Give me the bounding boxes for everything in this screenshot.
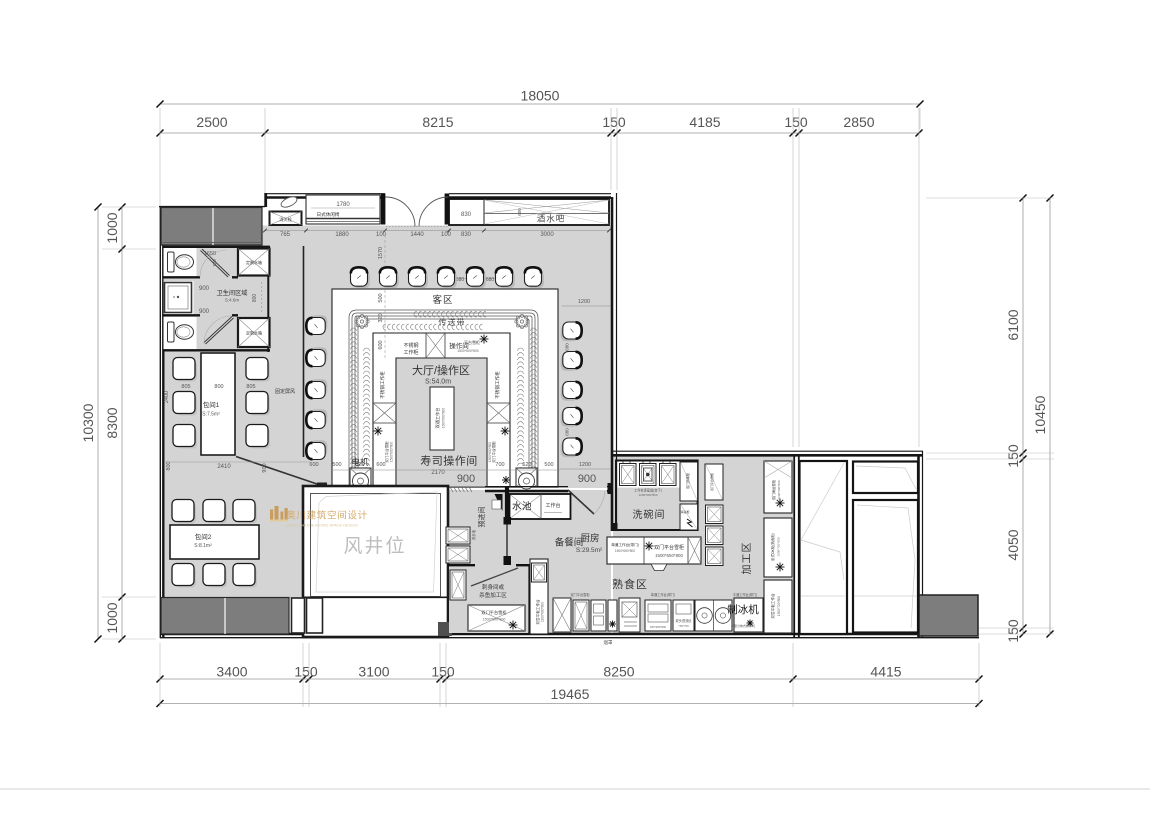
svg-text:8215: 8215 (422, 114, 453, 130)
svg-text:包间2: 包间2 (195, 532, 212, 541)
svg-text:2400: 2400 (164, 391, 170, 403)
svg-text:1500*600*800: 1500*600*800 (457, 349, 479, 353)
svg-text:S:7.5m²: S:7.5m² (202, 412, 220, 418)
svg-text:500: 500 (378, 293, 384, 302)
svg-text:酒水吧: 酒水吧 (537, 214, 566, 224)
svg-text:不锈钢: 不锈钢 (403, 342, 418, 349)
svg-text:8300: 8300 (104, 407, 120, 438)
svg-text:卧式OK柜(熟食柜): 卧式OK柜(熟食柜) (770, 533, 775, 561)
svg-text:平台雪柜: 平台雪柜 (464, 339, 480, 345)
svg-text:消火栓: 消火栓 (279, 216, 292, 223)
svg-text:不锈钢工作柜: 不锈钢工作柜 (379, 371, 386, 399)
svg-text:150: 150 (1005, 619, 1021, 643)
svg-text:900: 900 (199, 309, 210, 315)
svg-text:4050: 4050 (1005, 529, 1021, 560)
svg-text:800: 800 (252, 294, 258, 303)
svg-text:定制水箱: 定制水箱 (246, 259, 262, 265)
svg-text:2170: 2170 (431, 470, 445, 476)
svg-text:680: 680 (486, 277, 495, 283)
svg-text:大厅/操作区: 大厅/操作区 (412, 363, 470, 377)
svg-text:150: 150 (1005, 444, 1021, 468)
svg-text:小型分体式制冰机: 小型分体式制冰机 (731, 623, 755, 628)
svg-text:刺身间或: 刺身间或 (482, 583, 505, 591)
svg-text:卫生间区域: 卫生间区域 (217, 289, 248, 297)
svg-text:6100: 6100 (1005, 309, 1021, 340)
svg-text:1200*600*800: 1200*600*800 (638, 493, 657, 497)
svg-text:水池: 水池 (512, 501, 532, 513)
svg-text:厨房: 厨房 (580, 533, 599, 545)
svg-text:寿司操作间: 寿司操作间 (420, 454, 478, 468)
svg-text:150: 150 (294, 664, 318, 680)
svg-text:600: 600 (517, 208, 522, 216)
svg-text:600: 600 (378, 340, 384, 349)
svg-text:S:8.1m²: S:8.1m² (194, 543, 212, 549)
svg-text:900: 900 (457, 473, 475, 485)
svg-text:830: 830 (461, 212, 472, 218)
svg-text:8250: 8250 (603, 664, 634, 680)
svg-text:680: 680 (456, 277, 465, 283)
svg-text:日式休闲椅: 日式休闲椅 (317, 211, 340, 218)
svg-text:900: 900 (199, 286, 210, 292)
svg-text:熟食区: 熟食区 (612, 577, 648, 591)
svg-text:480*480*800: 480*480*800 (650, 625, 667, 629)
svg-text:1500*720*600: 1500*720*600 (777, 537, 781, 556)
svg-text:150: 150 (431, 664, 455, 680)
svg-text:750*750: 750*750 (678, 624, 689, 628)
svg-text:S:4.6m: S:4.6m (225, 298, 240, 303)
svg-text:805: 805 (246, 384, 255, 390)
svg-text:1440: 1440 (410, 232, 424, 238)
svg-text:19465: 19465 (551, 686, 590, 702)
svg-text:定制水箱: 定制水箱 (246, 330, 262, 336)
svg-text:预进间: 预进间 (477, 507, 486, 528)
svg-text:680: 680 (565, 428, 570, 436)
svg-text:双门平台雪柜: 双门平台雪柜 (384, 441, 389, 463)
svg-text:单通工作台(带门): 单通工作台(带门) (611, 542, 639, 547)
svg-text:双门平台雪柜: 双门平台雪柜 (654, 544, 684, 551)
svg-text:固定屏风: 固定屏风 (275, 388, 295, 395)
svg-text:双门平台雪柜: 双门平台雪柜 (709, 473, 714, 491)
svg-text:双门平台雪柜: 双门平台雪柜 (481, 609, 506, 616)
svg-text:客区: 客区 (432, 294, 453, 306)
svg-text:烟罩: 烟罩 (604, 639, 613, 646)
svg-text:1200: 1200 (579, 462, 591, 468)
svg-text:双门海运雪柜: 双门海运雪柜 (771, 479, 776, 500)
svg-text:3000: 3000 (540, 232, 554, 238)
svg-text:制冰机: 制冰机 (727, 603, 759, 616)
svg-text:4415: 4415 (870, 664, 901, 680)
svg-text:10450: 10450 (1032, 395, 1048, 434)
svg-text:2850: 2850 (843, 114, 874, 130)
svg-text:MOKO CHEN BUILDING SPACE DESIG: MOKO CHEN BUILDING SPACE DESIGN (286, 524, 358, 528)
svg-text:双门平台雪柜: 双门平台雪柜 (570, 592, 590, 597)
svg-text:双层平板工作台: 双层平板工作台 (535, 599, 540, 625)
svg-text:单通工作台(带门): 单通工作台(带门) (651, 592, 675, 597)
svg-text:传送带: 传送带 (439, 317, 466, 327)
svg-text:500: 500 (332, 462, 341, 468)
svg-text:1500*650*800: 1500*650*800 (655, 553, 683, 558)
svg-text:900: 900 (578, 473, 596, 485)
svg-text:150: 150 (784, 114, 808, 130)
svg-text:1500*600*800: 1500*600*800 (442, 408, 446, 428)
svg-text:3100: 3100 (358, 664, 389, 680)
svg-text:680: 680 (565, 343, 570, 351)
svg-text:830: 830 (461, 232, 472, 238)
svg-text:工作台连星盆(台下): 工作台连星盆(台下) (634, 488, 662, 493)
svg-text:700: 700 (212, 259, 217, 267)
svg-text:S:29.5m²: S:29.5m² (576, 547, 603, 554)
svg-text:不锈钢工作柜: 不锈钢工作柜 (494, 371, 501, 399)
svg-text:消毒柜: 消毒柜 (680, 509, 689, 514)
svg-text:100: 100 (441, 232, 452, 238)
svg-text:2500: 2500 (196, 114, 227, 130)
svg-text:18050: 18050 (521, 88, 560, 104)
svg-text:800: 800 (214, 384, 223, 390)
svg-text:1200: 1200 (578, 299, 590, 305)
svg-text:1880: 1880 (335, 232, 349, 238)
svg-text:杀鱼加工区: 杀鱼加工区 (479, 591, 507, 599)
svg-text:1200*600*800: 1200*600*800 (777, 480, 781, 499)
svg-text:1570: 1570 (378, 247, 384, 259)
svg-text:1000: 1000 (104, 602, 120, 633)
svg-text:500: 500 (544, 462, 553, 468)
svg-text:洗碗间: 洗碗间 (633, 508, 666, 521)
svg-text:1500*650*800: 1500*650*800 (615, 549, 635, 553)
svg-text:700: 700 (495, 462, 504, 468)
svg-text:包间1: 包间1 (203, 400, 220, 409)
svg-text:1650: 1650 (204, 251, 216, 257)
svg-text:600: 600 (309, 462, 318, 468)
svg-text:平通工作台(带门): 平通工作台(带门) (733, 592, 757, 597)
svg-text:4185: 4185 (689, 114, 720, 130)
svg-text:1500*600*800: 1500*600*800 (390, 442, 394, 462)
svg-text:1300*720*800: 1300*720*800 (777, 596, 781, 616)
svg-text:800: 800 (166, 461, 172, 470)
svg-text:900: 900 (262, 463, 268, 472)
svg-text:805: 805 (181, 384, 190, 390)
svg-text:150: 150 (602, 114, 626, 130)
svg-text:加工区: 加工区 (741, 542, 753, 575)
svg-text:S:54.0m: S:54.0m (425, 379, 451, 386)
svg-text:双层平板工作台: 双层平板工作台 (770, 593, 775, 619)
svg-text:765: 765 (280, 232, 291, 238)
svg-text:1780: 1780 (336, 202, 350, 208)
svg-text:洗手池: 洗手池 (471, 529, 476, 540)
svg-text:520: 520 (355, 462, 364, 468)
svg-text:1100*600*800: 1100*600*800 (541, 602, 545, 622)
svg-text:工作柜: 工作柜 (403, 349, 418, 356)
svg-text:双头低汤灶: 双头低汤灶 (676, 618, 693, 623)
svg-text:1500*600*800: 1500*600*800 (483, 618, 506, 622)
svg-text:风井位: 风井位 (343, 535, 406, 557)
svg-text:1500*600*800: 1500*600*800 (488, 442, 492, 462)
svg-text:双通工作台: 双通工作台 (434, 408, 441, 429)
svg-text:奥川建筑空间设计: 奥川建筑空间设计 (286, 510, 368, 522)
svg-text:600: 600 (376, 462, 385, 468)
svg-text:2410: 2410 (217, 464, 231, 470)
svg-text:工作台: 工作台 (545, 502, 560, 509)
svg-text:1000: 1000 (104, 212, 120, 243)
svg-text:520: 520 (522, 462, 531, 468)
svg-text:10300: 10300 (80, 403, 96, 442)
svg-text:3400: 3400 (216, 664, 247, 680)
svg-text:双门消毒柜: 双门消毒柜 (685, 472, 690, 489)
svg-text:320: 320 (378, 313, 384, 322)
